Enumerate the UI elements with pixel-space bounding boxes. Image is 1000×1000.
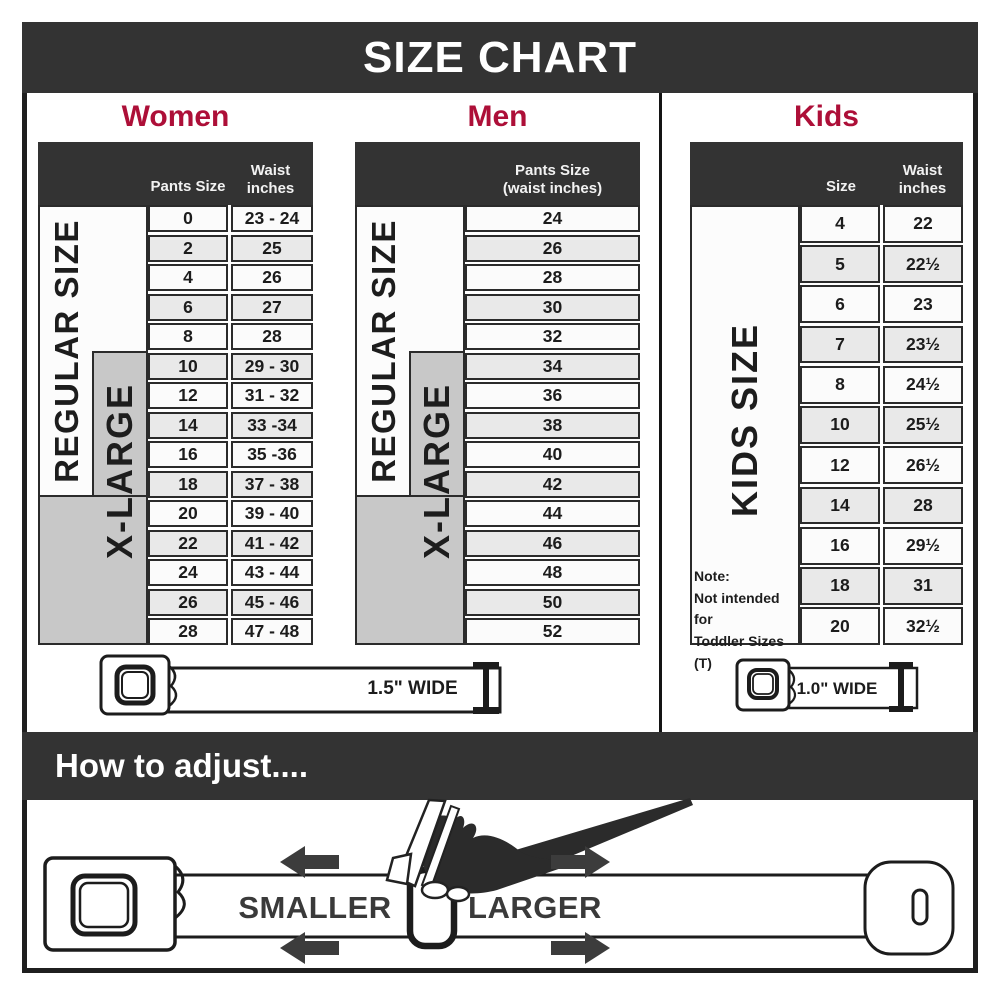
women-waist-cell: 26 xyxy=(231,264,313,291)
kids-waist-cell: 32½ xyxy=(883,607,963,645)
kids-size-cell: 4 xyxy=(800,205,880,243)
men-size-cell: 52 xyxy=(465,618,640,645)
women-waist-cell: 25 xyxy=(231,235,313,262)
women-waist-cell: 27 xyxy=(231,294,313,321)
kids-waist-cell: 28 xyxy=(883,487,963,525)
men-size-cell: 24 xyxy=(465,205,640,232)
women-size-cell: 4 xyxy=(148,264,228,291)
kids-size-cell: 10 xyxy=(800,406,880,444)
kids-waist-cell: 22 xyxy=(883,205,963,243)
kids-waist-cell: 24½ xyxy=(883,366,963,404)
men-regular-label-wrap: REGULAR SIZE xyxy=(355,205,413,497)
men-xlarge-label: X-LARGE xyxy=(416,383,458,559)
men-heading: Men xyxy=(355,96,640,138)
kids-size-cell: 8 xyxy=(800,366,880,404)
adjust-illustration xyxy=(27,800,973,968)
kids-waist-cell: 29½ xyxy=(883,527,963,565)
kids-belt-width-label: 1.0" WIDE xyxy=(782,678,892,699)
kids-waist-cell: 26½ xyxy=(883,446,963,484)
women-table-body: 023 - 242254266278281029 - 301231 - 3214… xyxy=(148,205,313,645)
women-size-cell: 24 xyxy=(148,559,228,586)
women-col-pants-size: Pants Size xyxy=(148,142,228,205)
men-table-body: 242628303234363840424446485052 xyxy=(465,205,640,645)
women-size-cell: 6 xyxy=(148,294,228,321)
kids-waist-cell: 25½ xyxy=(883,406,963,444)
kids-size-cell: 7 xyxy=(800,326,880,364)
women-xlarge-label-wrap: X-LARGE xyxy=(92,351,148,591)
men-size-cell: 46 xyxy=(465,530,640,557)
women-waist-cell: 31 - 32 xyxy=(231,382,313,409)
women-waist-cell: 45 - 46 xyxy=(231,589,313,616)
seatbelt-buckle-icon xyxy=(101,656,176,714)
men-size-cell: 32 xyxy=(465,323,640,350)
women-size-cell: 14 xyxy=(148,412,228,439)
women-xlarge-label: X-LARGE xyxy=(99,383,141,559)
kids-waist-cell: 22½ xyxy=(883,245,963,283)
kids-col-waist: Waist inches xyxy=(882,142,963,205)
kids-waist-cell: 23 xyxy=(883,285,963,323)
page-title: SIZE CHART xyxy=(22,22,978,93)
men-size-cell: 30 xyxy=(465,294,640,321)
women-size-cell: 16 xyxy=(148,441,228,468)
adjust-section-heading: How to adjust.... xyxy=(22,732,978,800)
women-size-cell: 18 xyxy=(148,471,228,498)
kids-waist-cell: 23½ xyxy=(883,326,963,364)
smaller-label: SMALLER xyxy=(240,891,390,925)
kids-size-cell: 12 xyxy=(800,446,880,484)
kids-waist-cell: 31 xyxy=(883,567,963,605)
men-size-cell: 38 xyxy=(465,412,640,439)
women-size-cell: 12 xyxy=(148,382,228,409)
men-size-cell: 40 xyxy=(465,441,640,468)
women-waist-cell: 33 -34 xyxy=(231,412,313,439)
women-size-cell: 22 xyxy=(148,530,228,557)
men-xlarge-label-wrap: X-LARGE xyxy=(409,351,465,591)
adult-belt-width-label: 1.5" WIDE xyxy=(350,677,475,700)
women-size-cell: 2 xyxy=(148,235,228,262)
women-waist-cell: 39 - 40 xyxy=(231,500,313,527)
women-size-cell: 28 xyxy=(148,618,228,645)
men-size-cell: 26 xyxy=(465,235,640,262)
men-col-header: Pants Size (waist inches) xyxy=(465,142,640,205)
arrow-left-icon xyxy=(280,846,339,878)
men-regular-label: REGULAR SIZE xyxy=(365,219,403,483)
men-size-cell: 42 xyxy=(465,471,640,498)
women-size-cell: 26 xyxy=(148,589,228,616)
women-regular-label: REGULAR SIZE xyxy=(48,219,86,483)
women-waist-cell: 43 - 44 xyxy=(231,559,313,586)
women-waist-cell: 29 - 30 xyxy=(231,353,313,380)
men-size-cell: 50 xyxy=(465,589,640,616)
kids-table-body: 422522½623723½824½1025½1226½14281629½183… xyxy=(800,205,963,645)
women-size-cell: 0 xyxy=(148,205,228,232)
belt-tip xyxy=(865,862,953,954)
kids-size-cell: 20 xyxy=(800,607,880,645)
men-size-cell: 28 xyxy=(465,264,640,291)
kids-heading: Kids xyxy=(690,96,963,138)
women-waist-cell: 37 - 38 xyxy=(231,471,313,498)
women-waist-cell: 47 - 48 xyxy=(231,618,313,645)
women-waist-cell: 41 - 42 xyxy=(231,530,313,557)
women-heading: Women xyxy=(38,96,313,138)
kids-size-label: KIDS SIZE xyxy=(724,323,766,517)
seatbelt-buckle-icon xyxy=(45,858,184,950)
women-waist-cell: 35 -36 xyxy=(231,441,313,468)
kids-size-cell: 16 xyxy=(800,527,880,565)
larger-label: LARGER xyxy=(460,891,610,925)
men-size-cell: 34 xyxy=(465,353,640,380)
kids-col-size: Size xyxy=(800,142,882,205)
kids-size-cell: 18 xyxy=(800,567,880,605)
women-size-cell: 20 xyxy=(148,500,228,527)
kids-size-cell: 14 xyxy=(800,487,880,525)
women-waist-cell: 28 xyxy=(231,323,313,350)
men-size-cell: 36 xyxy=(465,382,640,409)
women-size-cell: 10 xyxy=(148,353,228,380)
women-col-waist: Waist inches xyxy=(228,142,313,205)
women-waist-cell: 23 - 24 xyxy=(231,205,313,232)
size-chart-page: SIZE CHART Women Men Kids Pants Size Wai… xyxy=(0,0,1000,1000)
women-regular-label-wrap: REGULAR SIZE xyxy=(38,205,96,497)
kids-size-cell: 6 xyxy=(800,285,880,323)
kids-size-cell: 5 xyxy=(800,245,880,283)
women-size-cell: 8 xyxy=(148,323,228,350)
panel-divider xyxy=(659,93,662,732)
men-size-cell: 44 xyxy=(465,500,640,527)
men-size-cell: 48 xyxy=(465,559,640,586)
